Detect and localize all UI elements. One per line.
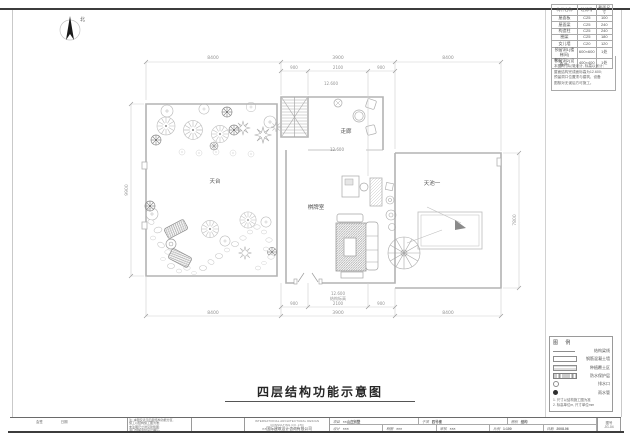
legend-box: 图 例 结构梁线 钢筋混凝土墙 种植覆土区 防水保护层 排水口 雨水管 1. 尺…	[549, 336, 613, 412]
room-label-game-room: 棋牌室	[308, 203, 325, 211]
svg-text:900: 900	[290, 301, 298, 306]
svg-text:8400: 8400	[442, 55, 454, 61]
roof-elevation: 12.600	[324, 81, 338, 86]
waterproof-swatch	[553, 373, 577, 380]
page-title: 四层结构功能示意图	[225, 383, 415, 402]
company-cell: INTERNATIONAL ARCHITECTURAL DESIGN CONSU…	[245, 418, 330, 432]
svg-text:7800: 7800	[512, 214, 518, 226]
garden-lounge-set	[164, 219, 193, 268]
svg-text:900: 900	[377, 301, 385, 306]
table-note: 备注: 本图尺寸以毫米计, 标高以米计; 屋面结构完成面标高为12.600; 预…	[551, 56, 616, 91]
beam-line-swatch	[553, 351, 575, 352]
garden-stone-path	[147, 219, 274, 275]
subproject-field: 子项四号楼	[419, 418, 508, 425]
legend-notes: 1. 尺寸以结构施工图为准 2. 标高单位m, 尺寸单位mm	[553, 398, 610, 408]
chair-icon	[366, 125, 377, 136]
legend-title: 图 例	[553, 339, 610, 346]
titleblock-grid: 项目××山庄别墅 子项四号楼 图别结构 设计××× 制图××× 审核××× 比例…	[330, 418, 598, 432]
dimension-lines	[131, 62, 519, 316]
room-label-corridor: 走廊	[340, 127, 352, 135]
svg-text:3900: 3900	[332, 55, 344, 61]
col-header: 构件名称	[552, 5, 578, 16]
room-label-terrace: 天台	[209, 177, 221, 185]
legend-item: 钢筋混凝土墙	[553, 356, 610, 362]
sky-pool	[407, 207, 482, 249]
note-title: 备注:	[554, 58, 562, 62]
sheet-bottom-border	[8, 431, 624, 433]
legend-item: 防水保护层	[553, 373, 610, 380]
sign-area: 会签 日期	[10, 418, 128, 432]
svg-text:8400: 8400	[442, 310, 454, 316]
col-header: 截面尺寸	[596, 5, 612, 16]
svg-text:3900: 3900	[332, 310, 344, 316]
floor-plan: 北	[0, 0, 630, 447]
staircase	[282, 97, 307, 137]
company-name-en: INTERNATIONAL ARCHITECTURAL DESIGN CONSU…	[245, 419, 329, 427]
north-arrow-icon: 北	[60, 16, 85, 40]
bottom-elevation-note: 结构标高	[330, 295, 346, 301]
svg-text:900: 900	[377, 65, 385, 70]
legend-item: 雨水管	[553, 390, 610, 396]
concrete-wall-swatch	[553, 356, 577, 362]
project-field: 项目××山庄别墅	[330, 418, 419, 425]
title-block: 会签 日期 注: 本图仅表示四层结构功能分区, 施工以结构施工图为准; 未注明尺…	[10, 417, 621, 432]
corridor-furniture	[334, 99, 365, 122]
table-header-row: 构件名称 砼标号 截面尺寸	[552, 5, 613, 16]
svg-text:2100: 2100	[333, 65, 344, 70]
svg-text:900: 900	[290, 65, 298, 70]
legend-item: 排水口	[553, 381, 610, 387]
planting-soil-swatch	[553, 365, 577, 371]
svg-text:8400: 8400	[207, 310, 219, 316]
titleblock-notes: 注: 本图仅表示四层结构功能分区, 施工以结构施工图为准; 未注明尺寸详见建筑图…	[128, 418, 192, 432]
note-line: 图核对无误后方可施工。	[554, 81, 614, 87]
discipline-field: 图别结构	[508, 418, 597, 425]
drawing-sheet: 北	[0, 0, 630, 447]
legend-item: 种植覆土区	[553, 365, 610, 371]
room-label-sky-pool: 天池一	[424, 179, 441, 187]
wall-details	[142, 150, 501, 229]
corridor-elevation: 12.600	[330, 147, 344, 152]
col-header: 砼标号	[577, 5, 596, 16]
walls	[146, 97, 501, 288]
north-label: 北	[80, 16, 85, 23]
svg-text:2100: 2100	[333, 301, 344, 306]
svg-text:9900: 9900	[124, 184, 130, 196]
rain-pipe-swatch	[553, 390, 558, 395]
legend-item: 结构梁线	[553, 348, 610, 354]
titleblock-empty-cell	[192, 418, 245, 432]
chair-icon	[365, 98, 376, 109]
sheet-number-cell: 图号 JG-04	[598, 418, 621, 432]
spiral-stair	[388, 237, 420, 269]
dimension-ticks	[129, 60, 521, 318]
svg-text:8400: 8400	[207, 55, 219, 61]
dimension-text: 8400 3900 8400 900 2100 900 900 2100 900…	[124, 55, 518, 316]
drain-outlet-swatch	[553, 381, 559, 387]
